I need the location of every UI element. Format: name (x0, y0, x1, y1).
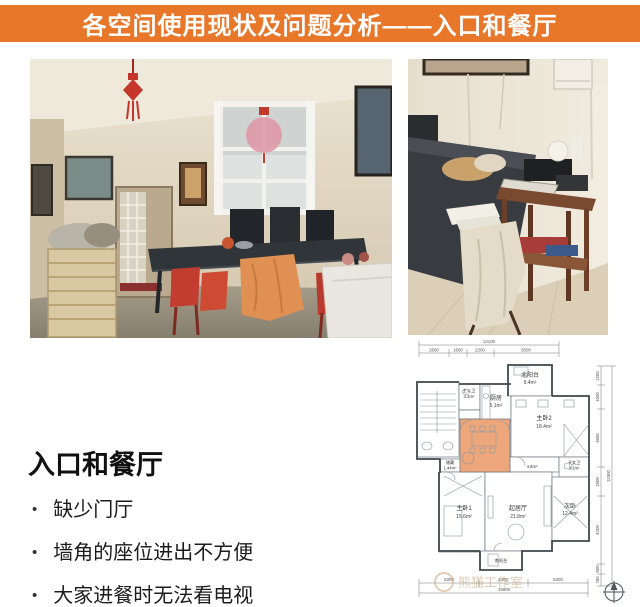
svg-text:5300: 5300 (553, 577, 563, 582)
pink-lantern (246, 117, 282, 153)
room-area: 21.8m² (510, 514, 526, 520)
room-label: 次卧 (564, 502, 576, 510)
title-bar: 各空间使用现状及问题分析——入口和餐厅 (0, 5, 640, 42)
room-label: 厨房 (490, 394, 502, 402)
picture-frame (424, 59, 528, 74)
section-heading: 入口和餐厅 (28, 443, 398, 482)
watermark: 熊猫工作室 (435, 573, 523, 591)
room-label: 主卧2 (536, 414, 552, 422)
wall-picture-landscape (66, 157, 112, 199)
issue-item: 墙角的座位进出不方便 (28, 541, 398, 566)
svg-text:1500: 1500 (595, 392, 600, 402)
svg-text:5600: 5600 (521, 348, 531, 353)
svg-text:1200: 1200 (595, 371, 600, 381)
orange-cloth-chair (240, 254, 304, 321)
room-area: 18.4m² (536, 424, 552, 430)
hall-area-label: 4.6m² (527, 464, 538, 469)
svg-text:750: 750 (595, 576, 600, 584)
room-area: 5.1m² (490, 403, 503, 409)
room-label: 主卧1 (456, 504, 472, 512)
room-area: 4.2m² (464, 394, 475, 399)
svg-text:3600: 3600 (595, 433, 600, 443)
slide: 各空间使用现状及问题分析——入口和餐厅 (0, 0, 640, 607)
issue-text: 缺少门厅 (53, 498, 133, 523)
room-area: 3.1m² (569, 466, 580, 471)
svg-text:2600: 2600 (429, 348, 439, 353)
svg-text:熊猫工作室: 熊猫工作室 (458, 575, 523, 590)
page-title: 各空间使用现状及问题分析——入口和餐厅 (83, 6, 558, 41)
issue-list: 缺少门厅 墙角的座位进出不方便 大家进餐时无法看电视 (28, 498, 398, 607)
room-label: 起居厅 (509, 504, 527, 512)
floor-plan-drawing: 北阳台 9.4m² 厨房 5.1m² 主人卫 4.2m² 主卧2 18.4m² … (404, 336, 638, 607)
svg-text:12100: 12100 (483, 339, 496, 344)
room-area: 1.44m² (443, 466, 457, 471)
room-area: 9.4m² (524, 380, 537, 386)
dimensions-top: 12100 2600 1600 2300 5600 (419, 339, 559, 357)
svg-text:600: 600 (595, 565, 600, 573)
room-label: 南阳台 (495, 557, 508, 564)
compass-icon (603, 581, 625, 603)
photo-dining-room (30, 59, 392, 338)
floor-plan: 北阳台 9.4m² 厨房 5.1m² 主人卫 4.2m² 主卧2 18.4m² … (404, 336, 638, 607)
issue-item: 缺少门厅 (28, 498, 398, 523)
issue-text: 墙角的座位进出不方便 (53, 541, 253, 566)
svg-text:1600: 1600 (453, 348, 463, 353)
room-label: 北阳台 (521, 371, 539, 379)
room-area: 15.6m² (456, 514, 472, 520)
svg-text:4200: 4200 (595, 525, 600, 535)
room-area: 12.4m² (562, 511, 578, 517)
window (214, 101, 315, 215)
analysis-notes: 入口和餐厅 缺少门厅 墙角的座位进出不方便 大家进餐时无法看电视 (28, 443, 398, 607)
dining-room-scene (30, 59, 392, 338)
svg-text:11500: 11500 (606, 470, 611, 482)
chest-of-drawers (48, 223, 120, 337)
wall-picture-right (356, 87, 392, 175)
photo-desk-corner (408, 59, 608, 335)
hallway-door (116, 187, 172, 297)
issue-item: 大家进餐时无法看电视 (28, 584, 398, 607)
dimensions-right: 1200 1500 3600 1800 4200 600 750 11500 (595, 366, 616, 586)
desk-corner-scene (408, 59, 608, 335)
svg-text:1800: 1800 (595, 477, 600, 487)
svg-text:2300: 2300 (475, 348, 485, 353)
room-label: 主人卫 (463, 387, 476, 393)
issue-text: 大家进餐时无法看电视 (53, 584, 253, 607)
wall-picture-small (32, 165, 52, 215)
